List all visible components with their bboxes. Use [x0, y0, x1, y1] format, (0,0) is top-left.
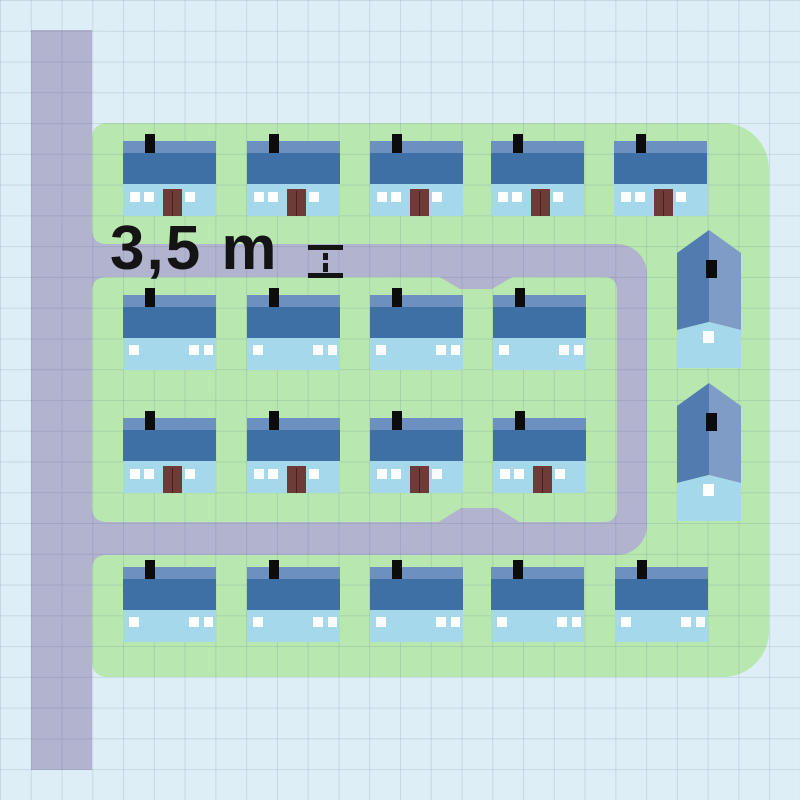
- house-front: [370, 141, 463, 216]
- chimney: [145, 560, 155, 579]
- roof: [615, 579, 708, 610]
- houses-layer: [0, 0, 800, 800]
- door: [163, 189, 182, 216]
- house-gable: [677, 230, 741, 368]
- house-back: [491, 567, 584, 642]
- map-background: 3,5 m: [0, 0, 800, 800]
- window: [254, 192, 264, 202]
- house-front: [247, 141, 340, 216]
- road-width-label: 3,5 m: [110, 218, 279, 280]
- roof: [614, 153, 707, 184]
- roof: [123, 153, 216, 184]
- window: [313, 345, 323, 355]
- window: [189, 617, 199, 627]
- window: [254, 469, 264, 479]
- window: [268, 469, 278, 479]
- house-front: [123, 141, 216, 216]
- window: [185, 469, 195, 479]
- window: [514, 469, 524, 479]
- roof-ridge: [123, 418, 216, 430]
- roof-ridge: [123, 295, 216, 307]
- window: [144, 469, 154, 479]
- window: [574, 345, 583, 355]
- roof-ridge: [370, 295, 463, 307]
- roof-ridge: [247, 567, 340, 579]
- window: [130, 192, 140, 202]
- window: [309, 192, 319, 202]
- door: [410, 466, 429, 493]
- window: [376, 617, 386, 627]
- door: [654, 189, 673, 216]
- roof: [247, 430, 340, 461]
- house-back: [370, 295, 463, 370]
- roof: [247, 307, 340, 338]
- roof-ridge: [247, 418, 340, 430]
- roof: [493, 307, 586, 338]
- window: [703, 484, 714, 496]
- window: [499, 345, 509, 355]
- window: [621, 192, 631, 202]
- house-front: [370, 418, 463, 493]
- chimney: [513, 560, 523, 579]
- chimney: [637, 560, 647, 579]
- house-back: [247, 567, 340, 642]
- chimney: [392, 560, 402, 579]
- house-front: [493, 418, 586, 493]
- window: [204, 345, 213, 355]
- roof-ridge: [370, 418, 463, 430]
- window: [703, 331, 714, 343]
- window: [696, 617, 705, 627]
- window: [328, 345, 337, 355]
- window: [253, 617, 263, 627]
- window: [500, 469, 510, 479]
- window: [557, 617, 567, 627]
- chimney: [515, 288, 525, 307]
- chimney: [269, 411, 279, 430]
- window: [512, 192, 522, 202]
- window: [204, 617, 213, 627]
- window: [253, 345, 263, 355]
- window: [268, 192, 278, 202]
- window: [681, 617, 691, 627]
- window: [621, 617, 631, 627]
- roof: [491, 153, 584, 184]
- chimney: [706, 260, 717, 278]
- roof-ridge: [615, 567, 708, 579]
- roof-ridge: [493, 418, 586, 430]
- roof-right-slope: [709, 383, 741, 483]
- height-ruler-icon: [308, 245, 343, 278]
- ruler-dash: [323, 263, 328, 272]
- gable-house-graphic: [677, 230, 741, 368]
- roof-ridge: [247, 295, 340, 307]
- facade: [677, 475, 741, 521]
- window: [129, 345, 139, 355]
- house-front: [614, 141, 707, 216]
- window: [572, 617, 581, 627]
- roof: [123, 307, 216, 338]
- house-front: [491, 141, 584, 216]
- roof: [491, 579, 584, 610]
- window: [144, 192, 154, 202]
- roof-ridge: [123, 141, 216, 153]
- window: [497, 617, 507, 627]
- window: [391, 192, 401, 202]
- window: [313, 617, 323, 627]
- ruler-dash: [323, 253, 328, 260]
- house-back: [493, 295, 586, 370]
- chimney: [636, 134, 646, 153]
- window: [676, 192, 686, 202]
- window: [451, 345, 460, 355]
- house-back: [123, 567, 216, 642]
- window: [189, 345, 199, 355]
- chimney: [145, 288, 155, 307]
- house-gable: [677, 383, 741, 521]
- roof-right-slope: [709, 230, 741, 330]
- window: [391, 469, 401, 479]
- house-front: [123, 418, 216, 493]
- door: [287, 189, 306, 216]
- roof-ridge: [491, 141, 584, 153]
- house-back: [615, 567, 708, 642]
- chimney: [269, 560, 279, 579]
- window: [436, 617, 446, 627]
- window: [185, 192, 195, 202]
- roof-ridge: [493, 295, 586, 307]
- window: [635, 192, 645, 202]
- window: [555, 469, 565, 479]
- window: [328, 617, 337, 627]
- roof-ridge: [370, 567, 463, 579]
- window: [130, 469, 140, 479]
- house-back: [247, 295, 340, 370]
- window: [309, 469, 319, 479]
- chimney: [706, 413, 717, 431]
- chimney: [515, 411, 525, 430]
- gable-house-graphic: [677, 383, 741, 521]
- ruler-bottom-bar: [308, 273, 343, 278]
- chimney: [392, 411, 402, 430]
- roof: [493, 430, 586, 461]
- chimney: [269, 134, 279, 153]
- roof-ridge: [247, 141, 340, 153]
- door: [287, 466, 306, 493]
- door: [533, 466, 552, 493]
- roof: [123, 579, 216, 610]
- ruler-top-bar: [308, 245, 343, 250]
- window: [451, 617, 460, 627]
- roof: [370, 430, 463, 461]
- window: [129, 617, 139, 627]
- roof: [370, 307, 463, 338]
- window: [377, 192, 387, 202]
- roof: [247, 579, 340, 610]
- window: [377, 469, 387, 479]
- roof-ridge: [491, 567, 584, 579]
- door: [410, 189, 429, 216]
- window: [498, 192, 508, 202]
- house-back: [370, 567, 463, 642]
- door: [531, 189, 550, 216]
- chimney: [145, 411, 155, 430]
- roof: [247, 153, 340, 184]
- roof-ridge: [123, 567, 216, 579]
- window: [553, 192, 563, 202]
- door: [163, 466, 182, 493]
- window: [432, 192, 442, 202]
- chimney: [392, 288, 402, 307]
- window: [432, 469, 442, 479]
- chimney: [145, 134, 155, 153]
- house-front: [247, 418, 340, 493]
- window: [376, 345, 386, 355]
- roof-ridge: [614, 141, 707, 153]
- window: [436, 345, 446, 355]
- roof: [123, 430, 216, 461]
- roof-left-slope: [677, 383, 709, 483]
- roof-ridge: [370, 141, 463, 153]
- roof-left-slope: [677, 230, 709, 330]
- roof: [370, 579, 463, 610]
- house-back: [123, 295, 216, 370]
- facade: [677, 322, 741, 368]
- chimney: [513, 134, 523, 153]
- window: [559, 345, 569, 355]
- roof: [370, 153, 463, 184]
- chimney: [392, 134, 402, 153]
- chimney: [269, 288, 279, 307]
